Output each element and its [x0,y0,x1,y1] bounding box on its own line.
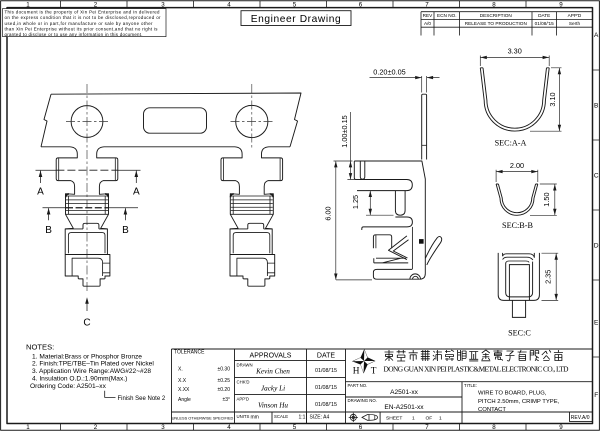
svg-text:DRAWN: DRAWN [237,362,253,367]
svg-text:SEC:C: SEC:C [508,329,531,338]
svg-text:2. Finish:TPE/TBE–Tin Plated o: 2. Finish:TPE/TBE–Tin Plated over Nickel [32,361,154,368]
svg-text:1: 1 [26,1,30,8]
svg-text:SIZE: A4: SIZE: A4 [310,414,330,420]
svg-text:X.: X. [178,366,183,372]
svg-text:E: E [594,320,599,327]
svg-text:Finish See Note 2: Finish See Note 2 [118,396,166,402]
svg-text:T: T [371,367,377,377]
svg-text:ECN NO.: ECN NO. [437,13,457,18]
svg-text:±3°: ±3° [222,397,230,403]
svg-text:DONG GUAN XIN PEI PLASTIC&META: DONG GUAN XIN PEI PLASTIC&METAL ELECTRON… [384,364,570,373]
svg-text:UNLESS OTHERWISE SPECIFIED: UNLESS OTHERWISE SPECIFIED [172,416,234,421]
svg-text:A: A [594,32,599,39]
svg-text:2: 2 [94,424,98,431]
svg-text:01/08/'15: 01/08/'15 [315,402,337,408]
svg-text:SCALE: SCALE [274,414,288,419]
svg-text:Kevin Chen: Kevin Chen [255,368,290,376]
svg-text:Serth: Serth [569,21,581,26]
svg-text:1: 1 [26,424,30,431]
svg-text:5: 5 [293,424,297,431]
svg-text:NOTES:: NOTES: [26,343,54,352]
svg-text:A2501-xx: A2501-xx [390,389,419,396]
svg-text:±0.30: ±0.30 [218,366,231,372]
svg-text:TITLE:: TITLE: [464,383,477,388]
svg-text:DATE: DATE [538,13,550,18]
svg-text:CHK'D: CHK'D [237,379,250,384]
svg-text:8: 8 [492,1,496,8]
svg-text:UNITS: UNITS [237,414,250,419]
svg-text:D: D [594,243,599,250]
svg-text:REV.A/0: REV.A/0 [571,415,590,421]
svg-text:3.30: 3.30 [508,47,522,56]
svg-text:DRAWING NO.: DRAWING NO. [348,398,377,403]
svg-text:Angle: Angle [178,397,191,403]
svg-text:2: 2 [94,1,98,8]
svg-text:APP'D: APP'D [237,396,250,401]
svg-text:X.X: X.X [178,378,187,384]
svg-text:C: C [83,318,90,329]
svg-text:3.10: 3.10 [548,92,557,106]
svg-text:01/08/'15: 01/08/'15 [315,385,337,391]
svg-text:H: H [353,367,360,377]
svg-text:4: 4 [227,1,231,8]
svg-text:CONTACT: CONTACT [478,407,506,413]
svg-text:EN-A2501-xx: EN-A2501-xx [384,404,424,411]
svg-text:2.35: 2.35 [543,270,552,284]
svg-text:4: 4 [227,424,231,431]
svg-text:01/08/'15: 01/08/'15 [315,368,337,374]
svg-text:6.00: 6.00 [324,206,333,220]
svg-text:TOLERANCE: TOLERANCE [174,350,205,356]
svg-text:±0.20: ±0.20 [218,387,231,393]
svg-text:APPROVALS: APPROVALS [250,352,292,359]
svg-text:1: 1 [412,415,415,421]
svg-text:7: 7 [425,1,429,8]
svg-text:DESCRIPTION: DESCRIPTION [480,13,512,18]
svg-text:C: C [594,173,599,180]
svg-text:B: B [594,103,598,110]
svg-text:SHEET: SHEET [386,415,402,421]
svg-text:7: 7 [425,424,429,431]
svg-text:RELEASE TO PRODUCTION: RELEASE TO PRODUCTION [465,21,527,26]
svg-text:than Xin Pei Enterprise withou: than Xin Pei Enterprise without its prio… [5,27,159,32]
svg-text:PART NO.: PART NO. [348,383,368,388]
svg-text:Engineer Drawing: Engineer Drawing [251,14,342,25]
svg-text:X.XX: X.XX [178,387,190,393]
svg-text:9: 9 [559,1,563,8]
svg-text:1.25: 1.25 [351,195,360,209]
svg-text:2.00: 2.00 [510,161,524,170]
svg-text:SEC:A-A: SEC:A-A [495,138,527,147]
svg-text:A: A [37,187,44,198]
svg-text:0.20±0.05: 0.20±0.05 [373,67,405,76]
svg-text:3: 3 [161,424,165,431]
svg-text:DATE: DATE [317,352,335,359]
svg-text:F: F [594,392,598,399]
svg-text:1.00±0.15: 1.00±0.15 [340,115,349,147]
svg-text:used,in whole or in part,for m: used,in whole or in part,for manufacture… [5,21,154,26]
svg-text:1. Material:Brass or Phosphor: 1. Material:Brass or Phosphor Bronze [32,353,142,360]
svg-text:5: 5 [293,1,297,8]
svg-text:3: 3 [161,1,165,8]
svg-text:APP'D: APP'D [568,13,582,18]
svg-text:PITCH 2.50mm, CRIMP TYPE,: PITCH 2.50mm, CRIMP TYPE, [478,399,560,405]
svg-text:A: A [133,187,140,198]
svg-text:REV: REV [423,13,434,18]
svg-text:1.50: 1.50 [542,192,551,206]
svg-text:1:1: 1:1 [299,414,306,420]
svg-text:B: B [122,225,129,236]
svg-text:01/08/'15: 01/08/'15 [535,21,555,26]
svg-text:6: 6 [359,1,363,8]
svg-text:This document is the property: This document is the property of Xin Pei… [5,10,161,15]
svg-text:1: 1 [439,415,442,421]
svg-text:Vinson Hu: Vinson Hu [258,402,288,410]
svg-text:B: B [45,225,52,236]
svg-text:A/0: A/0 [424,21,431,26]
svg-text:9: 9 [559,424,563,431]
svg-text:WIRE TO BOARD, PLUG,: WIRE TO BOARD, PLUG, [478,390,547,396]
svg-text:4. Insulation O.D.:1.90mm(Max.: 4. Insulation O.D.:1.90mm(Max.) [32,376,127,383]
svg-text:SEC:B-B: SEC:B-B [502,221,533,230]
svg-text:6: 6 [359,424,363,431]
svg-text:granted to disclose or to use: granted to disclose or to use any inform… [5,32,143,37]
svg-text:±0.25: ±0.25 [218,378,231,384]
svg-text:3. Application Wire Range:AWG#: 3. Application Wire Range:AWG#22~#28 [32,368,151,375]
svg-text:OF: OF [426,415,433,421]
svg-text:8: 8 [492,424,496,431]
svg-text:on the express condition that: on the express condition that it is not … [5,15,162,20]
svg-text:mm: mm [251,414,259,420]
svg-text:Ordering Code: A2501–xx: Ordering Code: A2501–xx [30,383,107,390]
svg-text:Jacky Li: Jacky Li [261,385,285,393]
